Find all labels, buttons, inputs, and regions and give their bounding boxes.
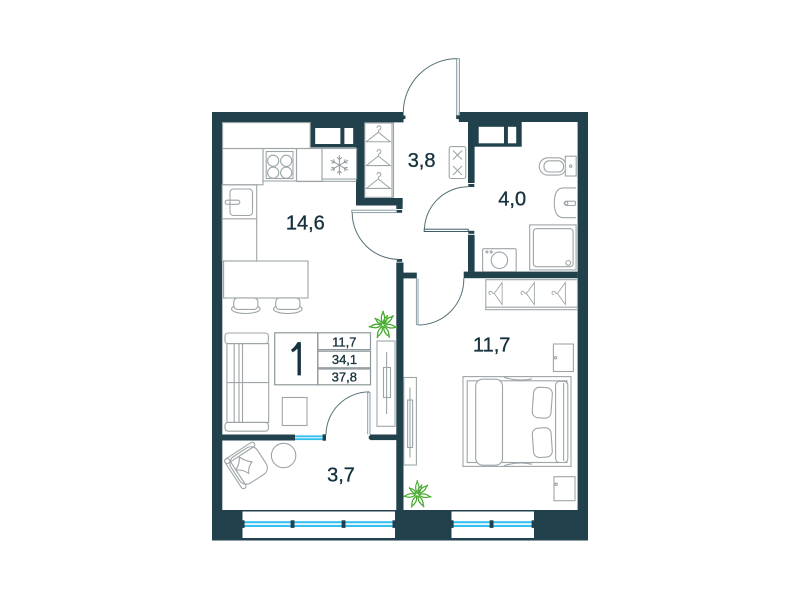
svg-text:3,7: 3,7 [327,464,355,486]
svg-text:11,7: 11,7 [473,334,510,356]
svg-text:34,1: 34,1 [332,352,357,367]
svg-text:14,6: 14,6 [286,213,325,235]
svg-text:11,7: 11,7 [332,334,356,349]
svg-text:37,8: 37,8 [332,370,357,385]
svg-text:3,8: 3,8 [408,150,436,172]
svg-text:4,0: 4,0 [498,189,526,211]
